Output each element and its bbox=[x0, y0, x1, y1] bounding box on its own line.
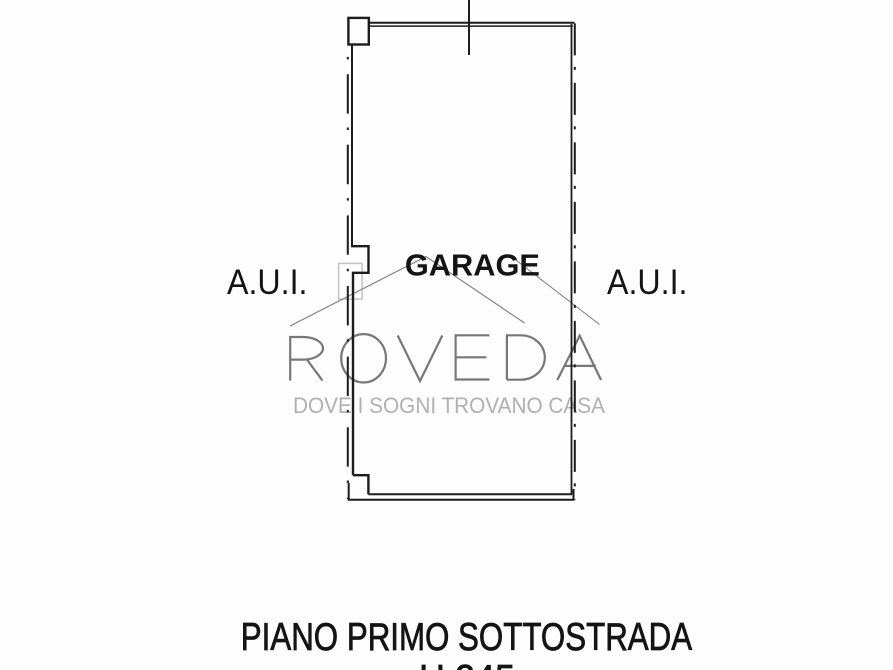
svg-text:DOVE I SOGNI TROVANO CASA: DOVE I SOGNI TROVANO CASA bbox=[293, 393, 605, 418]
svg-text:PIANO PRIMO SOTTOSTRADA: PIANO PRIMO SOTTOSTRADA bbox=[241, 615, 693, 659]
svg-text:A.U.I.: A.U.I. bbox=[227, 263, 308, 302]
svg-text:GARAGE: GARAGE bbox=[405, 248, 540, 283]
svg-text:H 245: H 245 bbox=[419, 657, 515, 670]
svg-text:A.U.I.: A.U.I. bbox=[607, 263, 688, 302]
